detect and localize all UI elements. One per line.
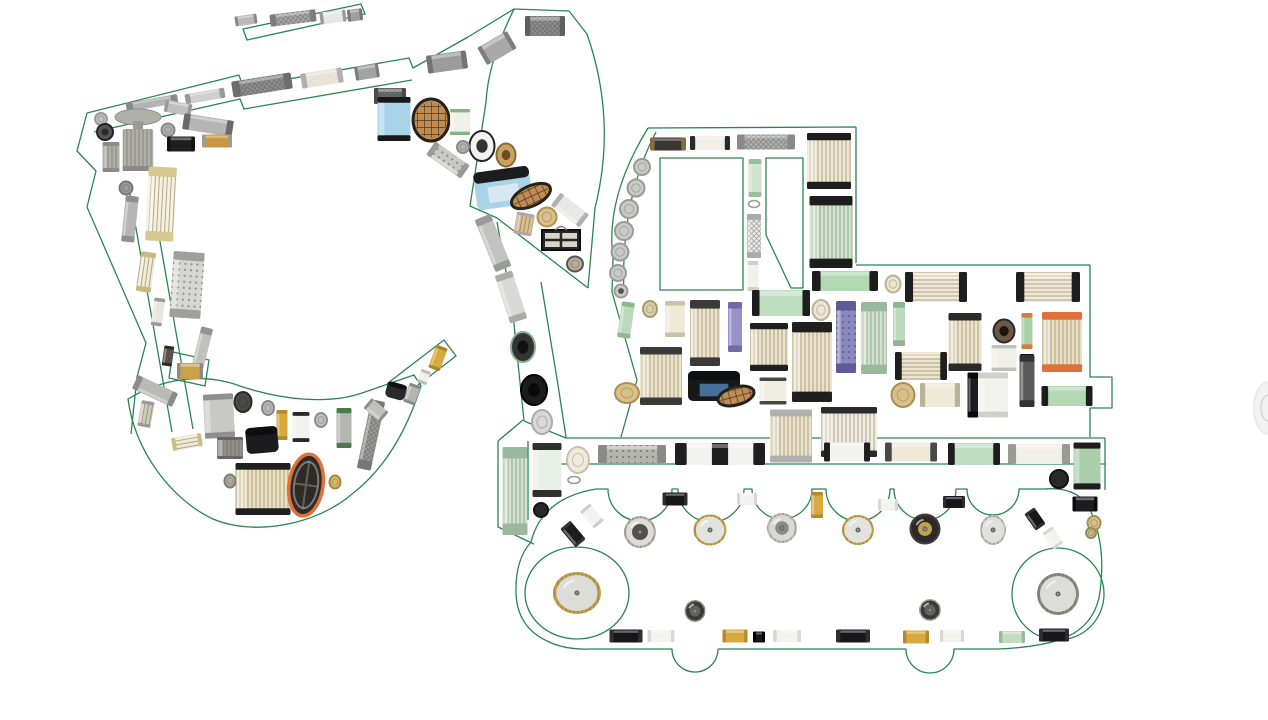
filter-part-cyl: [103, 142, 120, 172]
outline-path: [587, 34, 604, 288]
filter-part-cyl: [169, 251, 205, 319]
filter-part-disc: [634, 159, 650, 175]
filter-part-cyl: [1024, 507, 1045, 530]
filter-part-cyl: [824, 443, 870, 462]
filter-part-disc: [511, 332, 535, 362]
filter-part-disc: [97, 124, 113, 140]
filter-part-cyl: [162, 345, 175, 366]
filter-part-cyl: [999, 631, 1025, 643]
filter-part-cyl: [426, 50, 468, 73]
filter-part-disc: [330, 476, 341, 489]
filter-part-cyl: [752, 290, 810, 316]
filter-part-disc: [567, 257, 583, 272]
filter-part-wheel: [767, 513, 797, 543]
filter-part-cyl: [940, 630, 964, 642]
filter-part-cyl: [836, 630, 870, 643]
filter-part-cyl: [665, 301, 685, 337]
filter-part-cyl: [1008, 444, 1070, 464]
filter-part-disc: [1086, 528, 1096, 538]
filter-part-disc: [120, 182, 133, 195]
filter-part-cyl: [750, 323, 788, 371]
filter-part-cyl: [354, 63, 380, 81]
filter-parts-layer: [95, 8, 1268, 643]
filter-part-cyl: [477, 31, 516, 65]
filter-part-cyl: [617, 301, 635, 338]
filter-part-disc: [612, 244, 629, 261]
filter-part-cyl: [475, 214, 512, 272]
filter-part-cyl: [171, 433, 203, 451]
filter-part-cyl: [1042, 526, 1063, 549]
filter-part-cyl: [807, 133, 851, 189]
filter-part-cyl: [747, 214, 761, 258]
filter-part-cyl: [728, 302, 742, 352]
filter-part-cyl: [920, 383, 960, 407]
filter-part-cyl: [905, 272, 967, 302]
filter-part-disc: [497, 144, 516, 167]
filter-part-cyl: [132, 375, 178, 407]
filter-part-disc: [615, 222, 633, 240]
filter-part-cyl: [949, 313, 982, 371]
filter-part-disc: [470, 131, 495, 161]
filter-part-cyl: [1073, 497, 1098, 512]
filter-part-cyl: [1042, 386, 1093, 406]
filter-part-cyl: [277, 410, 288, 440]
filter-part-cyl: [450, 109, 470, 135]
filter-part-disc: [457, 141, 469, 153]
filter-part-disc: [620, 200, 638, 218]
filter-part-cyl: [137, 400, 154, 428]
filter-part-cyl: [269, 9, 316, 27]
filter-part-box: [245, 426, 279, 455]
filter-part-wheel: [910, 514, 941, 545]
filter-part-cyl: [675, 443, 765, 465]
filter-part-disc: [813, 300, 830, 320]
filter-part-cyl: [1042, 312, 1082, 372]
filter-part-cyl: [533, 443, 562, 497]
filter-part-cyl: [878, 499, 898, 511]
filter-part-cyl: [903, 631, 929, 644]
filter-part-ring: [568, 477, 580, 484]
filter-part-cyl: [663, 493, 688, 506]
filter-part-cyl: [968, 373, 979, 418]
filter-part-cyl: [167, 137, 195, 152]
filter-part-crate: [542, 227, 580, 251]
filter-part-cyl: [992, 345, 1017, 371]
filter-part-cyl: [598, 445, 666, 463]
filter-part-cyl: [748, 261, 759, 291]
filter-part-cyl: [337, 408, 352, 448]
filter-part-disc: [538, 208, 557, 227]
outline-path: [77, 113, 96, 171]
filter-part-disc: [886, 276, 901, 293]
filter-part-cyl: [580, 503, 604, 528]
filter-part-cyl: [428, 345, 447, 372]
filter-part-cyl: [1016, 272, 1080, 302]
filter-part-cyl: [495, 270, 528, 323]
filter-part-cyl: [792, 322, 832, 402]
filter-part-cyl: [1022, 313, 1033, 349]
filter-part-cyl: [1020, 355, 1035, 407]
filter-part-cyl: [1074, 443, 1101, 490]
filter-part-cyl: [948, 443, 1000, 465]
filter-part-cyl: [202, 135, 232, 148]
filter-part-cyl: [885, 443, 937, 462]
outline-path: [766, 158, 803, 288]
filter-part-cyl: [749, 159, 762, 197]
filter-part-cyl: [182, 113, 234, 137]
filter-part-cyl: [121, 195, 139, 242]
filter-part-cyl: [811, 492, 823, 518]
filter-part-cyl: [151, 297, 166, 326]
filter-part-wheel: [980, 515, 1006, 545]
filter-part-disc: [567, 447, 589, 473]
filter-part-cyl: [203, 393, 235, 439]
filter-part-cyl: [560, 521, 585, 548]
filter-part-cyl: [231, 72, 293, 97]
filter-part-disc: [994, 320, 1015, 343]
filter-part-cyl: [610, 630, 643, 643]
filter-part-cyl: [773, 630, 801, 642]
collage-canvas: [0, 0, 1268, 720]
filter-part-cyl: [737, 493, 757, 505]
filter-part-cyl: [770, 410, 812, 463]
filter-part-cyl: [551, 193, 589, 228]
filter-part-cyl: [145, 166, 177, 241]
filter-part-cyl: [363, 398, 388, 422]
filter-part-cyl: [810, 196, 853, 268]
filter-part-cyl: [650, 138, 686, 151]
filter-part-cyl: [836, 301, 856, 373]
filter-part-cyl: [753, 632, 765, 643]
filter-part-cyl: [293, 412, 310, 442]
filter-part-disc: [643, 301, 657, 317]
filter-part-cyl: [861, 302, 887, 374]
filter-part-disc: [162, 124, 175, 137]
filter-part-cyl: [690, 300, 720, 366]
filter-part-cyl: [812, 271, 878, 291]
filter-part-cyl: [760, 378, 787, 405]
filter-part-cyl: [640, 347, 682, 405]
filter-part-disc: [315, 413, 327, 427]
filter-part-cyl: [234, 14, 257, 27]
filter-part-cyl: [895, 352, 947, 380]
filter-part-wheel: [919, 599, 941, 621]
outline-path: [660, 158, 743, 290]
filter-part-cyl: [943, 496, 965, 508]
filter-part-oval: [413, 99, 449, 141]
filter-part-cyl: [648, 630, 675, 642]
filter-part-disc: [615, 285, 628, 298]
filter-part-cyl: [503, 447, 528, 535]
filter-part-ring: [749, 201, 760, 208]
filter-part-cyl: [236, 463, 291, 515]
filter-part-cyl: [378, 97, 411, 141]
filter-part-wheel: [553, 572, 601, 614]
filter-part-wheel: [1037, 573, 1079, 615]
filter-part-cyl: [300, 67, 344, 88]
filter-part-oval2: [285, 452, 327, 518]
filter-part-cyl: [1039, 629, 1069, 642]
filter-part-cyl: [723, 630, 748, 643]
filter-part-cyl: [513, 212, 535, 237]
filter-part-cyl: [177, 363, 203, 379]
filter-part-disc: [615, 383, 639, 403]
filter-part-wheel: [842, 515, 874, 545]
filter-part-disc: [1254, 382, 1268, 434]
filter-part-wheel: [685, 600, 706, 622]
filter-part-disc: [262, 401, 274, 415]
excavator-filter-collage: [0, 0, 1268, 720]
filter-part-disc: [610, 265, 626, 281]
filter-part-disc: [521, 375, 547, 405]
filter-part-cyl: [217, 437, 243, 459]
filter-part-disc: [532, 410, 552, 434]
filter-part-flange: [115, 109, 161, 171]
filter-part-disc: [225, 475, 236, 488]
filter-part-disc: [628, 180, 645, 197]
outline-path: [1090, 265, 1112, 437]
filter-part-cyl: [737, 135, 795, 150]
filter-part-wheel: [694, 515, 727, 546]
filter-part-disc: [892, 383, 915, 407]
filter-part-wheel: [624, 516, 656, 548]
filter-part-cyl: [136, 251, 156, 293]
filter-part-disc: [1050, 470, 1068, 488]
filter-part-cyl: [525, 16, 565, 36]
filter-part-cyl: [978, 373, 1008, 418]
filter-part-cyl: [893, 302, 905, 346]
filter-part-disc: [534, 503, 548, 517]
filter-part-cyl: [690, 136, 730, 150]
filter-part-disc: [235, 392, 252, 412]
filter-part-cyl: [347, 8, 363, 22]
filter-part-cyl: [184, 88, 225, 105]
